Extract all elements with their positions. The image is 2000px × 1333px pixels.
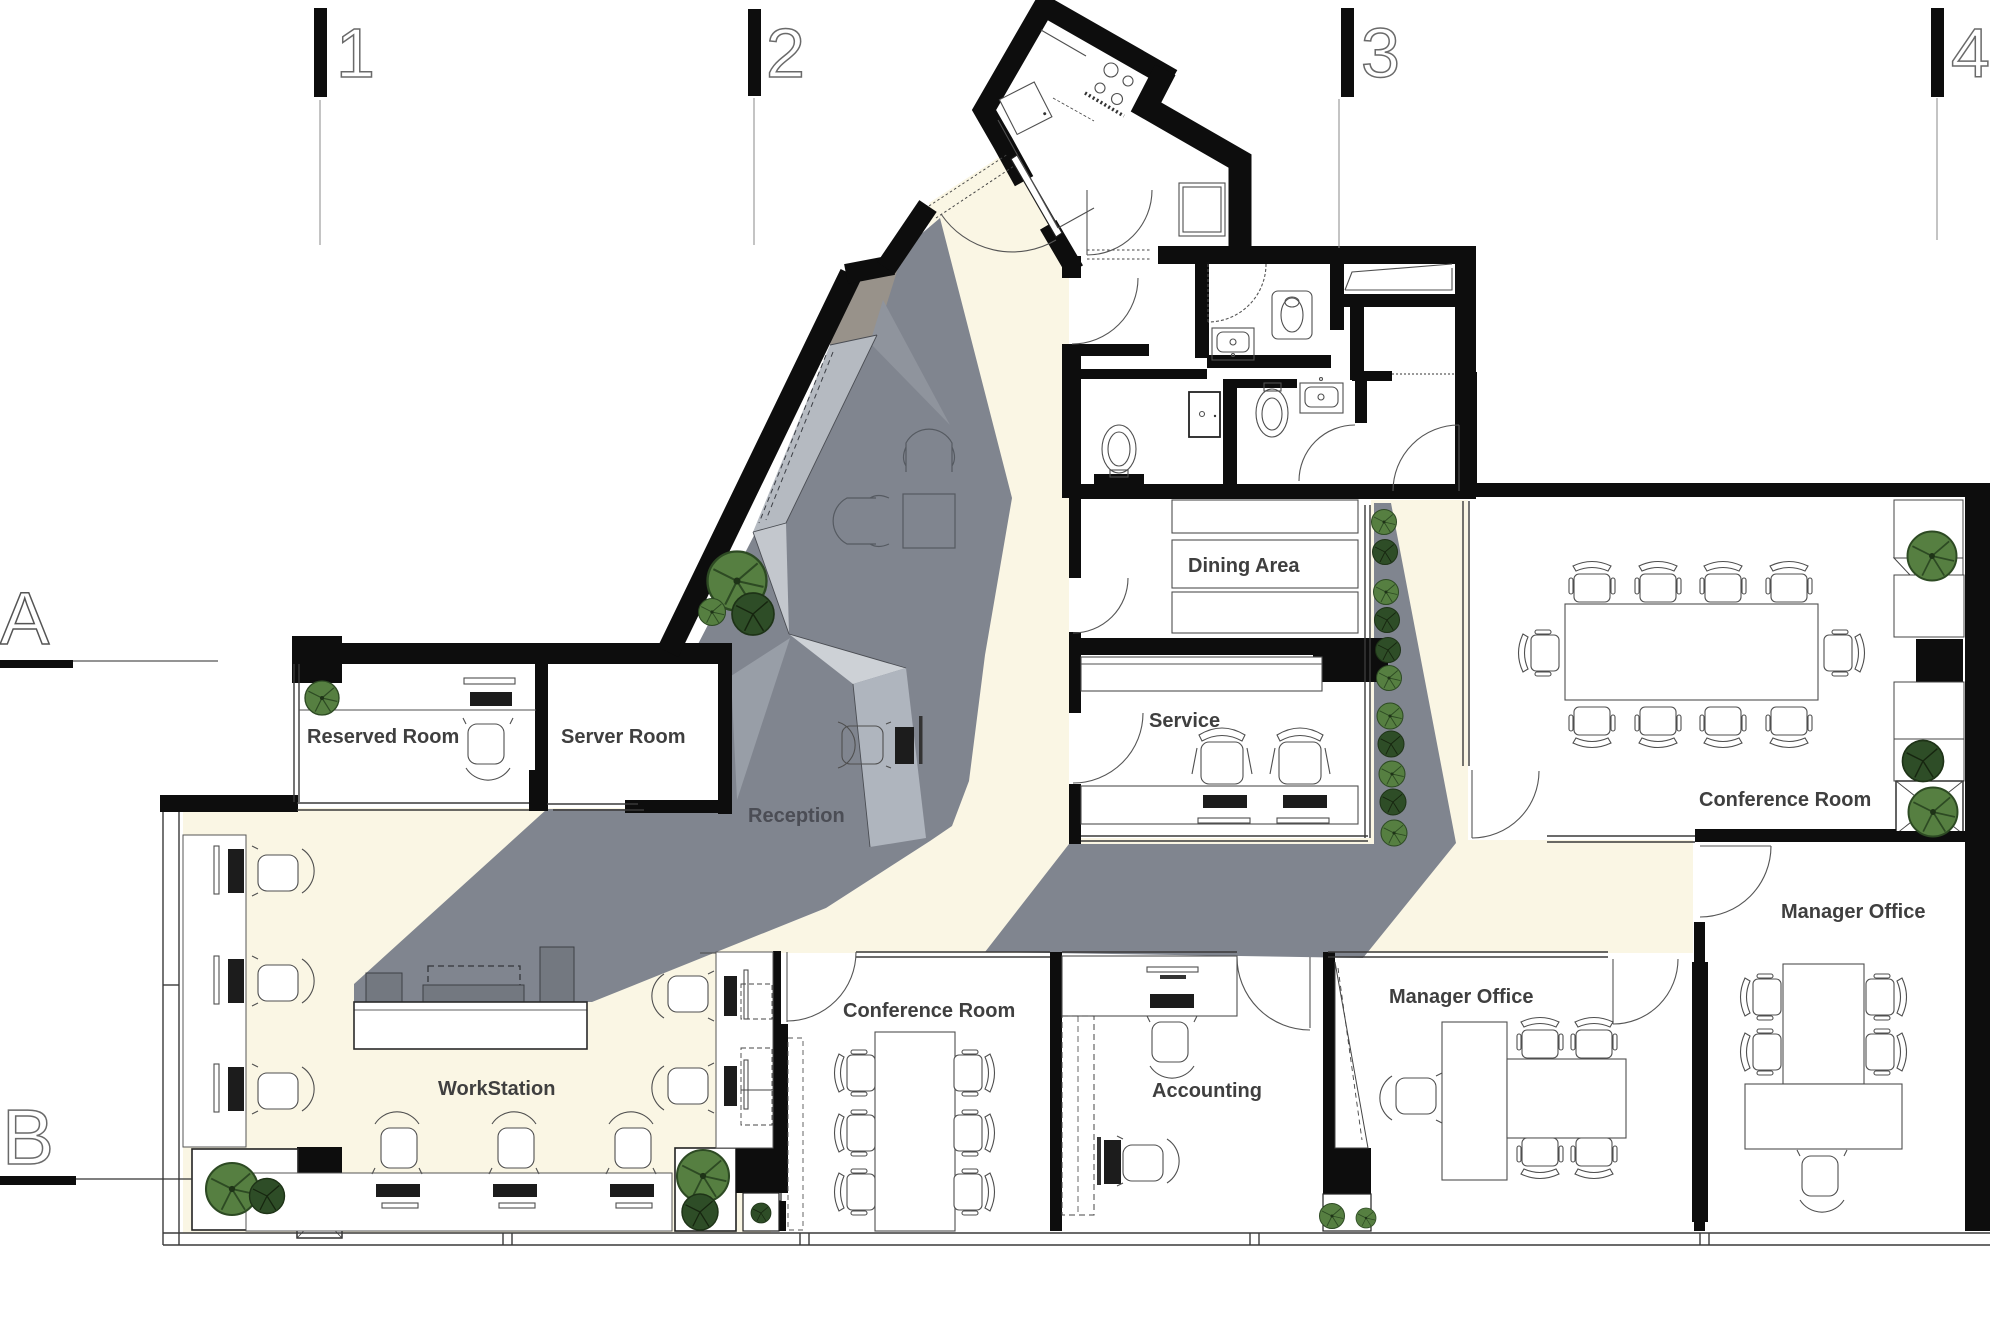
svg-text:1: 1 — [336, 14, 375, 92]
svg-text:A: A — [0, 577, 50, 660]
svg-text:2: 2 — [766, 14, 805, 92]
svg-text:WorkStation: WorkStation — [438, 1078, 555, 1100]
svg-text:Conference Room: Conference Room — [843, 1000, 1015, 1022]
svg-text:Accounting: Accounting — [1152, 1080, 1262, 1102]
svg-text:Conference Room: Conference Room — [1699, 789, 1871, 811]
svg-text:Dining Area: Dining Area — [1188, 555, 1300, 577]
svg-text:3: 3 — [1361, 14, 1400, 92]
svg-text:B: B — [2, 1093, 54, 1181]
svg-text:4: 4 — [1951, 14, 1990, 92]
svg-text:Manager Office: Manager Office — [1781, 901, 1925, 923]
svg-text:Manager Office: Manager Office — [1389, 986, 1533, 1008]
svg-text:Reception: Reception — [748, 805, 845, 827]
svg-text:Server Room: Server Room — [561, 726, 686, 748]
svg-text:Reserved Room: Reserved Room — [307, 726, 459, 748]
svg-text:Service: Service — [1149, 710, 1220, 732]
